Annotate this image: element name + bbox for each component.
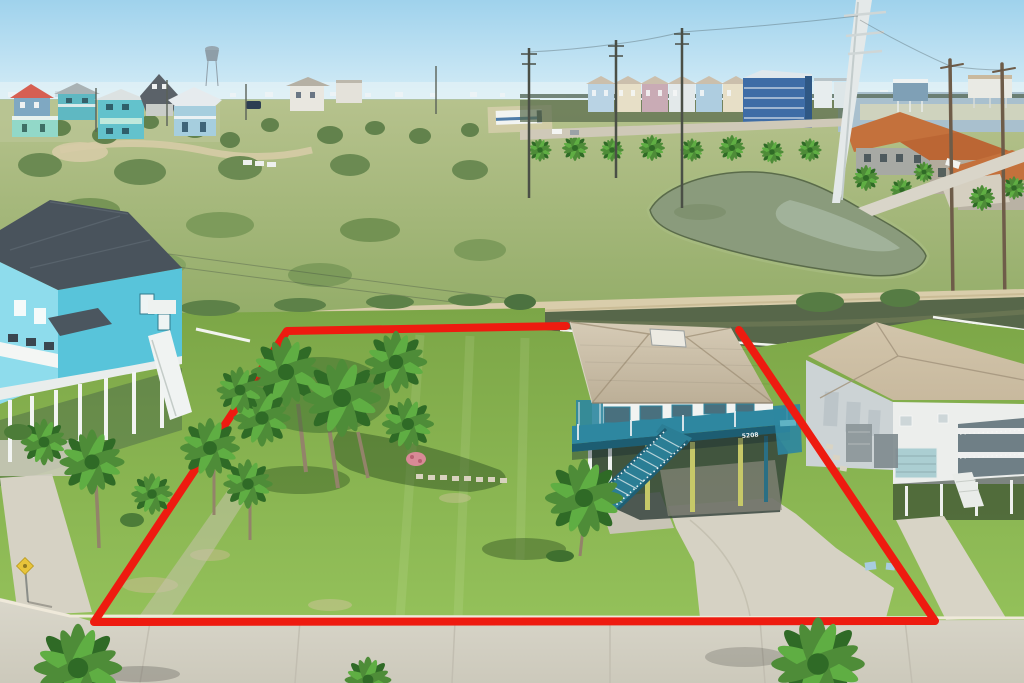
garage-door (895, 448, 937, 478)
aerial-photo: 5208 (0, 0, 1024, 683)
skylight (650, 329, 686, 347)
stilt-house-white (968, 75, 1012, 108)
palm-tree (131, 473, 173, 515)
palm-tree (60, 430, 125, 495)
stilt-house-bluegray (893, 79, 928, 112)
aerial-photo-canvas: 5208 (0, 0, 1024, 683)
house-number: 5208 (742, 432, 759, 440)
blue-condo-building (743, 70, 812, 128)
right-house-porch (958, 418, 1024, 478)
palm-tree (21, 419, 68, 466)
palm-tree (365, 331, 427, 393)
palm-tree (303, 359, 381, 437)
dark-suv (246, 101, 261, 109)
deck-bench (780, 420, 796, 427)
palm-tree (382, 398, 434, 450)
white-house-b (336, 80, 362, 103)
pink-flowering-bush (406, 452, 426, 466)
palm-tree (223, 459, 272, 508)
mint-shed (12, 116, 58, 137)
palm-tree (217, 367, 264, 414)
palm-tree (545, 459, 623, 537)
